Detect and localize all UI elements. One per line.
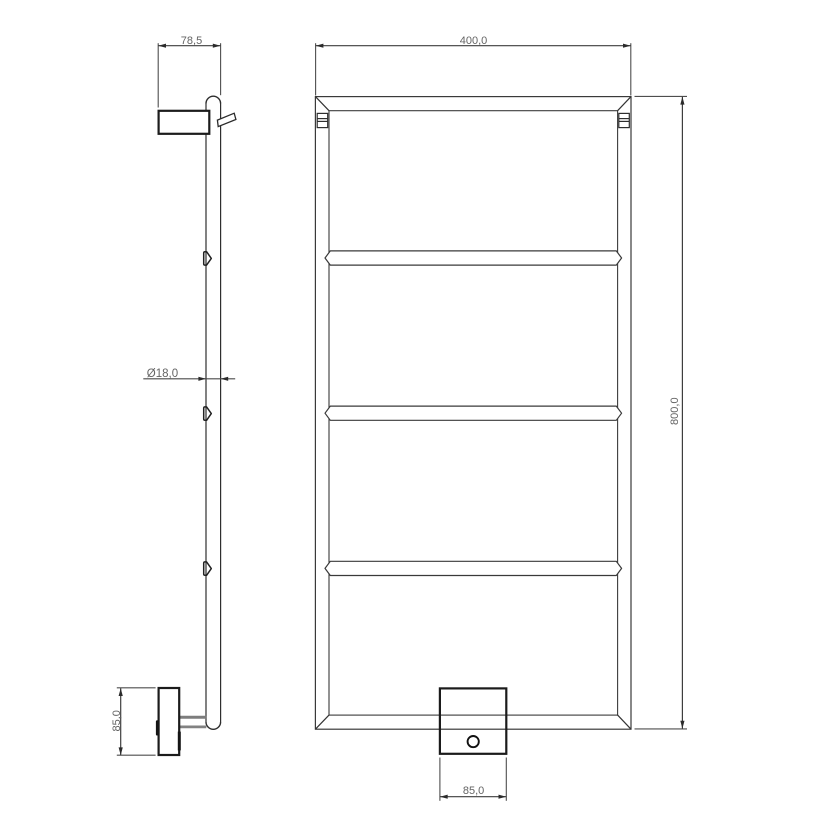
svg-text:400,0: 400,0 xyxy=(460,35,488,47)
svg-text:85,0: 85,0 xyxy=(111,710,123,731)
svg-text:Ø18,0: Ø18,0 xyxy=(147,368,178,380)
svg-text:85,0: 85,0 xyxy=(463,785,484,797)
svg-text:800,0: 800,0 xyxy=(669,397,681,425)
svg-text:78,5: 78,5 xyxy=(181,35,202,47)
